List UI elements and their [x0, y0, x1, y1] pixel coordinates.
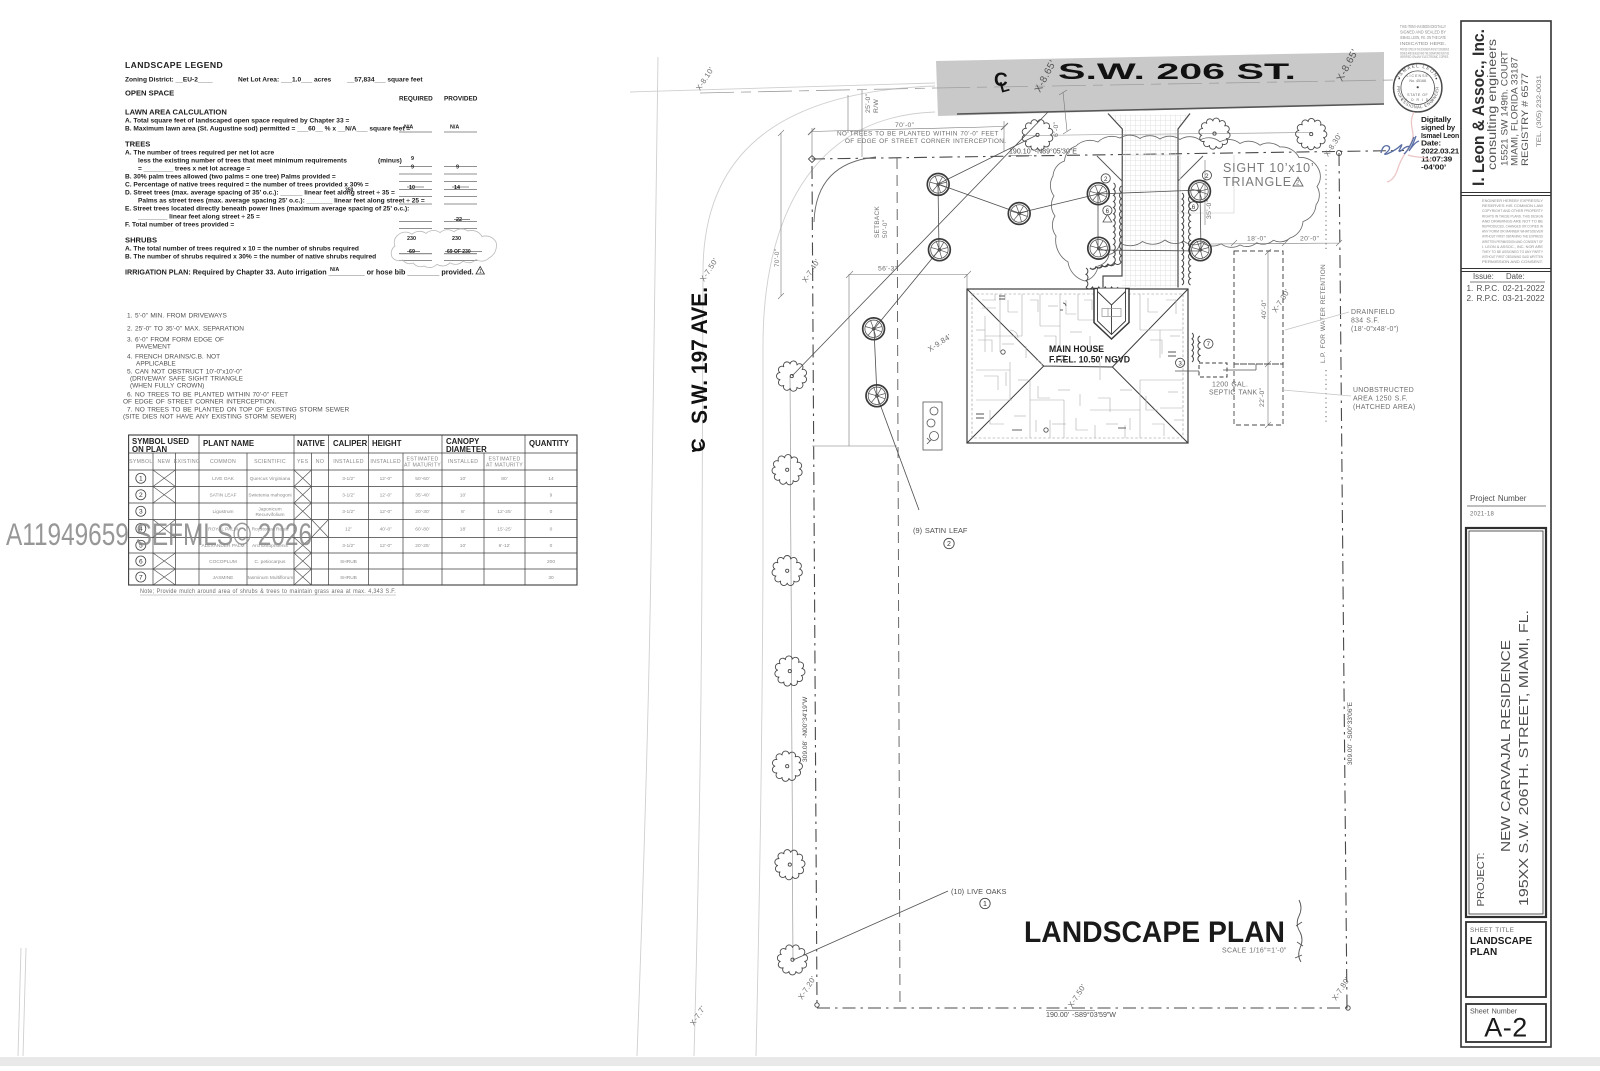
svg-text:25’-0”: 25’-0”: [865, 93, 872, 113]
svg-text:LANDSCAPE LEGEND: LANDSCAPE LEGEND: [125, 60, 223, 70]
svg-text:SHRUB: SHRUB: [340, 559, 357, 565]
svg-text:(9) SATIN LEAF: (9) SATIN LEAF: [913, 526, 968, 535]
svg-text:10’: 10’: [460, 493, 466, 499]
svg-text:COCOPLUM: COCOPLUM: [209, 559, 237, 565]
svg-text:9: 9: [411, 156, 414, 162]
svg-text:B. Maximum lawn area (St. Au: B. Maximum lawn area (St. Augustine sod)…: [125, 125, 410, 132]
svg-text:SHEET TITLE: SHEET TITLE: [1470, 927, 1514, 934]
svg-text:30: 30: [548, 575, 554, 581]
svg-text:VERIFIED ON ANY ELECTRONIC COP: VERIFIED ON ANY ELECTRONIC COPIES.: [1400, 55, 1449, 59]
svg-text:AT MATURITY: AT MATURITY: [486, 463, 523, 469]
svg-text:6: 6: [139, 558, 143, 565]
svg-text:20’-25’: 20’-25’: [415, 543, 429, 549]
svg-text:70’-0”: 70’-0”: [774, 249, 781, 267]
svg-text:PERMISSION AND CONSENT.: PERMISSION AND CONSENT.: [1482, 259, 1543, 264]
svg-text:6: 6: [1192, 204, 1196, 211]
svg-text:SATIN LEAF: SATIN LEAF: [209, 493, 236, 499]
svg-text:2: 2: [1104, 176, 1108, 183]
svg-text:14: 14: [454, 185, 460, 191]
svg-text:Swietenia mahogoni: Swietenia mahogoni: [248, 493, 291, 499]
svg-text:MIAMI, FLORIDA 33187: MIAMI, FLORIDA 33187: [1510, 57, 1520, 166]
svg-text:12’-0”: 12’-0”: [380, 543, 393, 549]
svg-text:350: 350: [345, 187, 354, 193]
svg-text:3-1/2”: 3-1/2”: [342, 509, 355, 515]
svg-text:R/W: R/W: [873, 99, 880, 113]
svg-text:200: 200: [547, 559, 555, 565]
svg-text:REQUIRED: REQUIRED: [399, 96, 433, 103]
svg-text:9: 9: [456, 165, 459, 171]
svg-text:= ________ trees x net lot: = ________ trees x net lot acreage =: [138, 165, 250, 172]
svg-text:SIGNED AND SEALED BY: SIGNED AND SEALED BY: [1400, 30, 1446, 35]
svg-text:80’: 80’: [501, 476, 507, 482]
svg-text:56’-3”: 56’-3”: [878, 266, 898, 273]
svg-text:TREES: TREES: [125, 140, 150, 149]
svg-text:3-1/2”: 3-1/2”: [342, 476, 355, 482]
svg-text:12’-0”: 12’-0”: [380, 493, 393, 499]
svg-text:HEIGHT: HEIGHT: [372, 439, 402, 448]
svg-text:3: 3: [1178, 360, 1182, 367]
svg-text:C. Percentage of native tree: C. Percentage of native trees required =…: [125, 181, 369, 188]
svg-text:22: 22: [456, 217, 462, 223]
svg-text:__57,834___ square feet: __57,834___ square feet: [346, 77, 423, 84]
svg-text:7: 7: [139, 574, 143, 581]
svg-text:15521 SW 149th. COURT: 15521 SW 149th. COURT: [1500, 51, 1510, 166]
svg-text:SCALE 1/16”=1’-0”: SCALE 1/16”=1’-0”: [1222, 948, 1287, 955]
svg-text:APPLICABLE: APPLICABLE: [136, 361, 176, 368]
svg-text:(minus): (minus): [378, 157, 402, 164]
svg-text:A-2: A-2: [1484, 1013, 1528, 1043]
svg-text:5. CAN NOT OBSTRUCT 10'-0”: 5. CAN NOT OBSTRUCT 10'-0”x10'-0”: [127, 369, 242, 376]
svg-text:DRAINFIELD: DRAINFIELD: [1351, 309, 1395, 316]
svg-text:SYMBOL: SYMBOL: [129, 459, 152, 465]
svg-text:6: 6: [1106, 208, 1110, 215]
svg-text:70’-0”: 70’-0”: [895, 122, 915, 129]
svg-text:230: 230: [452, 236, 461, 242]
svg-text:309.00’ -S00°33′06”E: 309.00’ -S00°33′06”E: [1346, 701, 1354, 765]
svg-text:AREA 1250 S.F.: AREA 1250 S.F.: [1353, 396, 1408, 403]
svg-text:less the existing number of tr: less the existing number of trees that m…: [138, 157, 347, 164]
svg-text:834 S.F.: 834 S.F.: [1351, 318, 1379, 325]
svg-text:1. R.P.C. 02-21-2022: 1. R.P.C. 02-21-2022: [1467, 284, 1545, 293]
svg-text:DIAMETER: DIAMETER: [446, 445, 487, 454]
svg-text:ISMAEL LEON, P.E. ON THE: ISMAEL LEON, P.E. ON THE DATE: [1400, 35, 1446, 40]
svg-text:2: 2: [947, 541, 951, 548]
svg-text:THIS ITEM HAS BEEN DIGITAL: THIS ITEM HAS BEEN DIGITALLY: [1400, 24, 1446, 29]
svg-text:1: 1: [983, 901, 987, 908]
svg-text:INDICATED HERE.: INDICATED HERE.: [1400, 41, 1446, 46]
svg-text:E. Street trees located dire: E. Street trees located directly beneath…: [125, 205, 409, 212]
svg-text:2: 2: [1205, 173, 1209, 180]
svg-text:S.W. 197 AVE.: S.W. 197 AVE.: [687, 287, 712, 424]
svg-text:OF EDGE OF STREET CORNER: OF EDGE OF STREET CORNER INTERCEPTION.: [845, 138, 1006, 145]
svg-text:INSTALLED: INSTALLED: [370, 459, 401, 465]
svg-text:50’-0”: 50’-0”: [882, 220, 889, 238]
svg-text:-04’00’: -04’00’: [1421, 162, 1446, 171]
svg-text:A11949659 SEFMLS© 2026: A11949659 SEFMLS© 2026: [6, 516, 312, 552]
svg-text:(DRIVEWAY SAFE SIGHT TRIANG: (DRIVEWAY SAFE SIGHT TRIANGLE: [130, 376, 244, 383]
svg-text:40’-0”: 40’-0”: [1261, 299, 1268, 319]
svg-text:12’-25’: 12’-25’: [497, 509, 511, 515]
svg-text:1: 1: [479, 269, 482, 275]
svg-text:1: 1: [139, 476, 143, 483]
svg-text:PROVIDED: PROVIDED: [444, 96, 478, 103]
svg-text:6’-12’: 6’-12’: [499, 543, 511, 549]
svg-text:IRRIGATION PLAN: Required by: IRRIGATION PLAN: Required by Chapter 33.…: [125, 267, 474, 276]
svg-text:Ligustrum: Ligustrum: [212, 509, 233, 515]
svg-text:(SITE DIES NOT HAVE ANY E: (SITE DIES NOT HAVE ANY EXISTING STORM S…: [123, 414, 296, 421]
svg-text:Date:: Date:: [1506, 272, 1525, 281]
svg-text:(18’-0”x48’-0”): (18’-0”x48’-0”): [1351, 326, 1399, 333]
svg-text:LICENSE: LICENSE: [1407, 74, 1429, 78]
svg-text:Palms as street trees (max. av: Palms as street trees (max. average spac…: [138, 197, 425, 204]
svg-text:MAIN HOUSE: MAIN HOUSE: [1049, 343, 1104, 354]
svg-text:UNOBSTRUCTED: UNOBSTRUCTED: [1353, 387, 1414, 394]
svg-text:(HATCHED AREA): (HATCHED AREA): [1353, 404, 1415, 411]
svg-text:CALIPER: CALIPER: [333, 439, 368, 448]
svg-text:3-1/2”: 3-1/2”: [342, 543, 355, 549]
svg-text:consulting engineers: consulting engineers: [1487, 39, 1499, 170]
svg-text:309.08’ -N00°34′19”W: 309.08’ -N00°34′19”W: [801, 696, 809, 762]
svg-text:SIGHT 10’x10’: SIGHT 10’x10’: [1223, 161, 1314, 175]
svg-text:LIVE OAK: LIVE OAK: [212, 476, 235, 482]
svg-text:NO: NO: [316, 459, 324, 465]
svg-text:18’: 18’: [460, 526, 466, 532]
svg-text:2021-18: 2021-18: [1470, 512, 1494, 518]
svg-text:2. 25'-0” TO 35'-0” MAX.: 2. 25'-0” TO 35'-0” MAX. SEPARATION: [127, 326, 244, 333]
svg-text:69 OF 230: 69 OF 230: [447, 249, 471, 255]
svg-text:N/A: N/A: [404, 125, 413, 131]
svg-text:LANDSCAPE PLAN: LANDSCAPE PLAN: [1024, 916, 1285, 949]
svg-text:40’-0”: 40’-0”: [380, 526, 393, 532]
svg-text:SETBACK: SETBACK: [874, 206, 881, 238]
svg-text:Japonicum: Japonicum: [258, 506, 281, 512]
svg-text:LAWN AREA CALCULATION: LAWN AREA CALCULATION: [125, 108, 227, 117]
svg-text:3: 3: [139, 509, 143, 516]
svg-text:12”: 12”: [345, 526, 352, 532]
svg-text:ON PLAN: ON PLAN: [132, 445, 167, 454]
svg-text:0: 0: [550, 526, 553, 532]
svg-text:12’-0”: 12’-0”: [380, 509, 393, 515]
svg-text:F. Total number of trees pro: F. Total number of trees provided =: [125, 221, 234, 228]
svg-text:TEL. (305) 232-0031: TEL. (305) 232-0031: [1536, 75, 1543, 147]
svg-text:A. Total square feet of land: A. Total square feet of landscaped open …: [125, 117, 349, 124]
svg-text:B. 30% palm trees allowed (: B. 30% palm trees allowed (two palms = o…: [125, 173, 336, 180]
svg-text:NEW: NEW: [157, 459, 170, 465]
svg-text:B. The number of shrubs requ: B. The number of shrubs required x 30% =…: [125, 253, 376, 260]
svg-text:18’-0”: 18’-0”: [1247, 236, 1267, 243]
svg-text:10’: 10’: [460, 543, 466, 549]
svg-text:7. NO TREES TO BE PLANTED: 7. NO TREES TO BE PLANTED ON TOP OF EXIS…: [127, 407, 349, 414]
svg-text:STATE OF: STATE OF: [1407, 93, 1428, 97]
svg-text:QUANTITY: QUANTITY: [529, 439, 570, 448]
svg-text:OPEN SPACE: OPEN SPACE: [125, 89, 174, 98]
svg-text:PLAN: PLAN: [1470, 947, 1497, 958]
svg-text:15’-25’: 15’-25’: [497, 526, 511, 532]
svg-text:3-1/2”: 3-1/2”: [342, 493, 355, 499]
svg-text:69: 69: [409, 249, 415, 255]
svg-text:NO TREES TO BE PLANTED WI: NO TREES TO BE PLANTED WITHIN 70’-0” FEE…: [837, 131, 999, 138]
svg-text:2. R.P.C. 03-21-2022: 2. R.P.C. 03-21-2022: [1467, 294, 1545, 303]
svg-text:OF EDGE OF STREET CORNER: OF EDGE OF STREET CORNER INTERCEPTION.: [123, 399, 277, 406]
svg-text:4. FRENCH DRAINS/C.B. NOT: 4. FRENCH DRAINS/C.B. NOT: [127, 354, 220, 361]
svg-text:EXISTING: EXISTING: [174, 459, 201, 465]
svg-text:INSTALLED: INSTALLED: [333, 459, 364, 465]
svg-text:NEW CARVAJAL RESIDENCE: NEW CARVAJAL RESIDENCE: [1498, 640, 1513, 852]
svg-text:PAVEMENT: PAVEMENT: [136, 344, 171, 351]
svg-text:Project Number: Project Number: [1470, 494, 1527, 503]
svg-text:D. Street trees (max. averag: D. Street trees (max. average spacing of…: [125, 189, 395, 196]
svg-text:Quercus Virginiana: Quercus Virginiana: [250, 476, 291, 482]
svg-text:0: 0: [550, 509, 553, 515]
svg-text:L.P. FOR WATER RETENTION: L.P. FOR WATER RETENTION: [1320, 264, 1327, 363]
svg-text:F.F.EL. 10.50’ NGVD: F.F.EL. 10.50’ NGVD: [1049, 354, 1130, 365]
svg-text:SCIENTIFIC: SCIENTIFIC: [254, 459, 286, 465]
svg-text:No. 45168: No. 45168: [1409, 79, 1426, 83]
svg-text:2: 2: [1296, 181, 1300, 187]
svg-text:(10) LIVE OAKS: (10) LIVE OAKS: [951, 887, 1006, 896]
svg-text:N/A: N/A: [330, 267, 339, 273]
svg-text:20’-0”: 20’-0”: [1300, 236, 1320, 243]
svg-text:COMMON: COMMON: [210, 459, 236, 465]
svg-text:3. 6'-0” FROM FORM EDGE O: 3. 6'-0” FROM FORM EDGE OF: [127, 337, 224, 344]
svg-text:8’: 8’: [461, 509, 465, 515]
svg-text:PROJECT:: PROJECT:: [1475, 853, 1487, 907]
svg-text:190.00’ -S89°03′59”W: 190.00’ -S89°03′59”W: [1046, 1011, 1117, 1019]
svg-text:TRIANGLE: TRIANGLE: [1223, 175, 1292, 189]
svg-text:LANDSCAPE: LANDSCAPE: [1470, 936, 1533, 947]
svg-text:JASMINE: JASMINE: [213, 575, 234, 581]
svg-text:9: 9: [550, 493, 553, 499]
svg-text:50’-60’: 50’-60’: [415, 476, 429, 482]
svg-text:7: 7: [1207, 341, 1211, 348]
svg-text:PLANT NAME: PLANT NAME: [203, 439, 254, 448]
svg-text:SHRUBS: SHRUBS: [125, 235, 157, 244]
svg-text:(WHEN FULLY CROWN): (WHEN FULLY CROWN): [130, 383, 204, 390]
svg-text:A. The number of trees requi: A. The number of trees required per net …: [125, 149, 274, 156]
svg-text:20’-30’: 20’-30’: [415, 509, 429, 515]
svg-text:Zoning District: __EU-2____: Zoning District: __EU-2____: [125, 77, 213, 84]
svg-text:2: 2: [139, 492, 143, 499]
svg-text:AT MATURITY: AT MATURITY: [404, 463, 441, 469]
svg-text:60’-80’: 60’-80’: [415, 526, 429, 532]
svg-text:0: 0: [550, 543, 553, 549]
svg-text:NATIVE: NATIVE: [297, 439, 325, 448]
svg-text:1. 5'-0” MIN. FROM DRIVEWA: 1. 5'-0” MIN. FROM DRIVEWAYS: [127, 313, 227, 320]
svg-text:REGISTRY # 6577: REGISTRY # 6577: [1520, 73, 1530, 166]
svg-text:35’-40’: 35’-40’: [415, 493, 429, 499]
svg-text:I. Leon & Assoc., Inc.: I. Leon & Assoc., Inc.: [1470, 29, 1488, 186]
svg-text:6. NO TREES TO BE PLANTED: 6. NO TREES TO BE PLANTED WITHIN 70'-0” …: [127, 392, 288, 399]
svg-text:Net Lot Area: ___1.0___ acre: Net Lot Area: ___1.0___ acres: [238, 77, 332, 84]
svg-text:14: 14: [548, 476, 554, 482]
svg-text:A. The total number of trees: A. The total number of trees required x …: [125, 245, 359, 252]
svg-text:35’-0”: 35’-0”: [1206, 199, 1213, 219]
svg-text:N/A: N/A: [450, 125, 459, 131]
svg-text:SHRUB: SHRUB: [340, 575, 357, 581]
svg-text:SEPTIC TANK: SEPTIC TANK: [1209, 390, 1258, 397]
svg-text:230: 230: [407, 236, 416, 242]
svg-text:6’-0”: 6’-0”: [1053, 121, 1060, 137]
svg-text:9: 9: [411, 165, 414, 171]
svg-text:10: 10: [409, 185, 415, 191]
svg-text:1200 GAL.: 1200 GAL.: [1212, 382, 1248, 389]
svg-text:22’-0”: 22’-0”: [1259, 387, 1266, 407]
svg-text:Issue:: Issue:: [1473, 272, 1494, 281]
svg-text:Note; Provide mulch around: Note; Provide mulch around area of shrub…: [140, 588, 396, 595]
svg-text:Jasminum Multiflorum: Jasminum Multiflorum: [247, 575, 294, 581]
svg-text:195XX S.W. 206TH. STREET, MIAM: 195XX S.W. 206TH. STREET, MIAMI, FL.: [1516, 610, 1531, 906]
svg-text:12’-0”: 12’-0”: [380, 476, 393, 482]
svg-text:INSTALLED: INSTALLED: [448, 459, 479, 465]
svg-text:________ linear feet along str: ________ linear feet along street ÷ 25 =: [137, 213, 260, 220]
svg-text:S.W. 206 ST.: S.W. 206 ST.: [1058, 59, 1296, 84]
svg-text:YES: YES: [297, 459, 309, 465]
svg-text:C. petiocarpus: C. petiocarpus: [255, 559, 287, 565]
svg-text:10’: 10’: [460, 476, 466, 482]
svg-text:F L O R I D A: F L O R I D A: [1401, 98, 1434, 102]
